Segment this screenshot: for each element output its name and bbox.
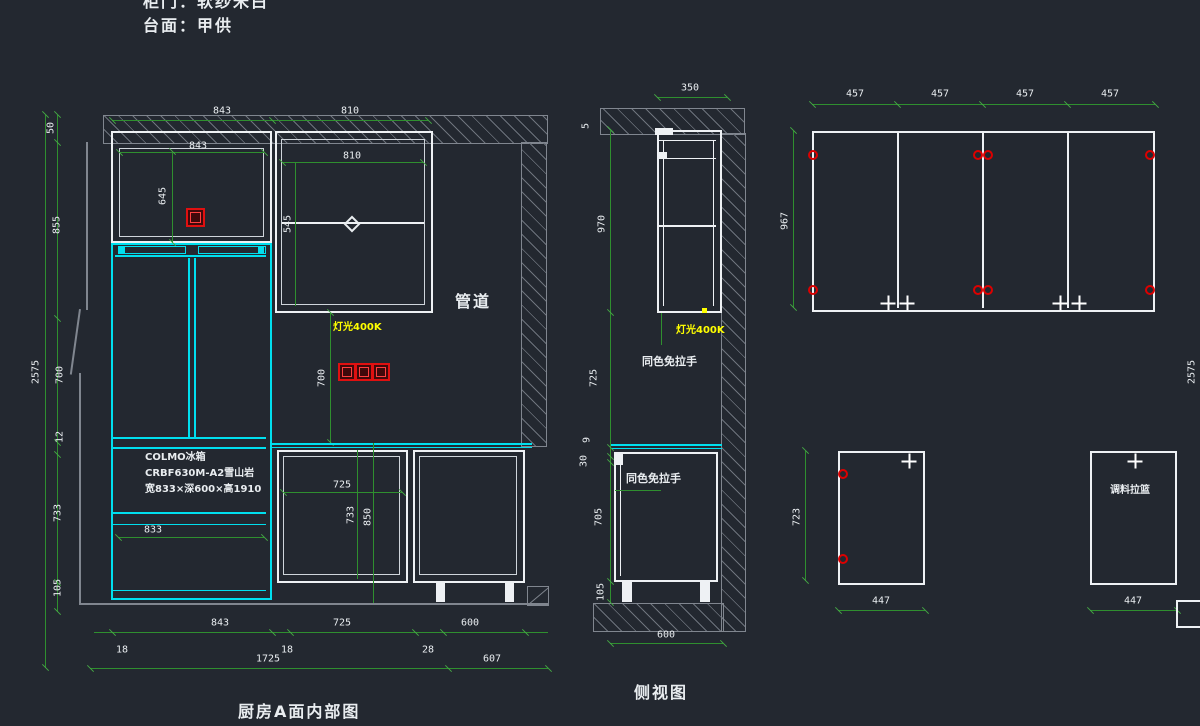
dim-door-height-967: 967 [780,212,791,230]
fridge-handle-block [119,247,125,253]
socket-icon [186,208,205,227]
dim-base-door-447a: 447 [872,596,890,607]
handle-label-top: 同色免拉手 [642,353,697,369]
cabinet-leg [436,581,445,602]
side-cabinet-inner-left [663,140,664,306]
center-mark [902,454,917,469]
socket-icon [338,363,356,381]
spice-rack-label: 调料拉篮 [1110,481,1150,496]
dim-upper-855: 855 [52,216,63,234]
dim-socket-drop: 700 [317,369,328,387]
hinge-icon [1145,150,1155,160]
header-door-note: 柜门：软纱米白 [143,0,269,12]
fridge-hline5 [113,590,266,591]
dim-total-height: 2575 [31,360,42,384]
handle-leader-line2 [615,490,661,491]
fridge-cabinet [111,243,272,600]
left-wall-line2 [79,373,81,605]
dim-fridge-width: 833 [144,525,162,536]
hinge-icon [808,285,818,295]
duct-wall-hatch [521,142,547,447]
dim-right-607: 607 [483,654,501,665]
dim-bottom-725: 725 [333,618,351,629]
base-door-panel-a [838,451,925,585]
dim-line-base-door-height [805,451,806,581]
fridge-handle-block [258,247,264,253]
side-floor-hatch [593,603,724,632]
dim-ceiling-drop: 50 [46,122,57,134]
countertop-line2 [272,447,532,448]
base-cabinet-2-inner [419,456,517,575]
side-cabinet-shelf [659,225,716,227]
wall-corner-section [527,586,549,606]
hinge-icon [983,285,993,295]
dim-gap-725: 725 [589,369,600,387]
dim-offset-28: 28 [422,645,434,656]
side-base-inner-line [620,458,621,576]
dim-line-doors-top [812,104,1155,105]
handle-leader-line [661,313,662,345]
clipped-drawing-fragment [1176,600,1200,628]
fridge-handle-right [198,246,266,254]
fridge-note-2: CRBF630M-A2雪山岩 [145,464,254,479]
dim-line-bottom-chain [94,632,548,633]
door-divider-3 [1067,131,1069,308]
dim-base-height: 733 [346,506,357,524]
side-wall-hatch [721,133,746,632]
header-counter-note: 台面：甲供 [143,12,233,36]
side-cabinet-crown [655,128,673,135]
center-mark [881,296,896,311]
dim-counter-12: 12 [55,431,66,443]
dim-wall-970: 970 [597,215,608,233]
dim-base-733: 733 [53,504,64,522]
dim-door-457-4: 457 [1101,89,1119,100]
fridge-note-3: 宽833×深600×高1910 [145,480,261,495]
left-wall-jog [70,309,81,375]
socket-icon [355,363,373,381]
dim-base-total: 850 [363,508,374,526]
dim-base-width: 725 [333,480,351,491]
dim-bottom-600: 600 [461,618,479,629]
side-cabinet-inner-right [713,140,714,306]
dim-leg-105-side: 105 [596,583,607,601]
dim-inner-645: 645 [158,187,169,205]
dim-offset-18a: 18 [116,645,128,656]
socket-icon [372,363,390,381]
dim-line-inner-545 [295,162,296,306]
dim-top-810: 810 [341,106,359,117]
base-door-panel-b [1090,451,1177,585]
dim-base-705: 705 [594,508,605,526]
fridge-divider-a [188,258,190,437]
cabinet-leg [700,580,710,602]
hinge-icon [808,150,818,160]
dim-line-base-height [357,450,358,579]
fridge-handle-left [118,246,186,254]
center-mark [900,296,915,311]
dim-leg-105: 105 [53,579,64,597]
dim-base-door-447b: 447 [1124,596,1142,607]
fridge-hline4 [113,524,266,525]
dim-side-600: 600 [657,630,675,641]
dim-line-inner-810 [282,162,423,163]
side-view-title: 侧视图 [634,679,688,703]
dim-inner-545: 545 [283,215,294,233]
hinge-icon [973,150,983,160]
side-light-label: 灯光400K [676,321,725,336]
side-cabinet-line2 [667,158,716,159]
dim-counter-9: 9 [582,437,593,443]
hinge-icon [983,150,993,160]
fridge-divider-b [194,258,196,437]
handle-label-bottom: 同色免拉手 [626,470,681,486]
hinge-icon [838,469,848,479]
cad-canvas[interactable]: 柜门：软纱米白 台面：甲供 COLMO冰箱 CRBF630M-A2雪山岩 宽83… [0,0,1200,726]
dim-base-door-723: 723 [792,508,803,526]
dim-total-1725: 1725 [256,654,280,665]
center-mark [1128,454,1143,469]
hinge-icon [973,285,983,295]
fridge-top-band [115,255,266,257]
dim-drop-30: 30 [579,455,590,467]
hinge-icon [838,554,848,564]
dim-mid-700: 700 [55,366,66,384]
center-mark [1072,296,1087,311]
dim-door-457-1: 457 [846,89,864,100]
left-view-title: 厨房A面内部图 [238,698,360,722]
dim-bottom-843: 843 [211,618,229,629]
dim-line-socket-drop [330,313,331,443]
dim-line-left-chain [57,115,58,612]
center-mark [1053,296,1068,311]
dim-gap-5: 5 [581,123,592,129]
dim-line-total-height [45,115,46,668]
dim-inner-843: 843 [189,141,207,152]
fridge-hline3 [113,512,266,514]
dim-line-depth [657,97,727,98]
cabinet-leg [622,580,632,602]
dim-line-inner-645 [172,152,173,243]
dim-line-base-width [283,492,402,493]
countertop-line [272,443,532,445]
base-cabinet-1-inner [283,456,400,575]
dim-line-doors-height [793,131,794,308]
dim-line-side-bottom [610,643,723,644]
hinge-icon [1145,285,1155,295]
dim-edge-2575: 2575 [1187,360,1198,384]
side-countertop2 [610,448,722,449]
dim-depth-350: 350 [681,83,699,94]
door-divider-1 [897,131,899,308]
dim-line-base-door-a [838,610,925,611]
light-label: 灯光400K [333,318,382,333]
dim-line-inner-843 [119,152,264,153]
light-dot-icon [702,308,707,313]
left-wall-line [86,142,88,310]
dim-line-total-chain [90,668,548,669]
dim-door-457-3: 457 [1016,89,1034,100]
dim-door-457-2: 457 [931,89,949,100]
floor-line [79,603,548,605]
cabinet-leg [505,581,514,602]
fridge-hline1 [113,437,266,439]
dim-line-base-door-b [1090,610,1177,611]
fridge-note-1: COLMO冰箱 [145,448,206,463]
side-countertop [610,444,722,446]
duct-label: 管道 [455,288,491,312]
dim-inner-810: 810 [343,151,361,162]
dim-line-side-chain [610,130,611,603]
dim-top-843: 843 [213,106,231,117]
side-cabinet-line1 [659,140,716,141]
dim-line-top-chain [112,120,428,121]
dim-offset-18b: 18 [281,645,293,656]
dim-line-fridge-width [118,537,264,538]
